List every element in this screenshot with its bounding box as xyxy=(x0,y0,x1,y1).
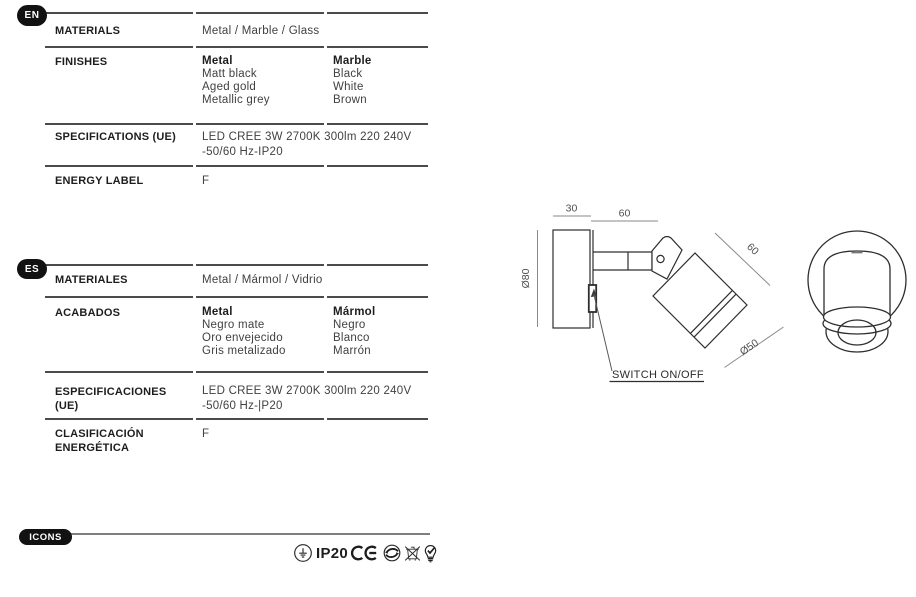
row-label-especificaciones: ESPECIFICACIONES (UE) xyxy=(55,385,166,413)
wall-base-rect xyxy=(553,230,590,328)
dim-base-depth: 30 xyxy=(566,203,578,215)
divider-rule xyxy=(45,264,428,266)
divider-rule xyxy=(45,165,428,167)
front-view xyxy=(808,231,906,352)
finishes-metal-column: Metal Matt black Aged gold Metallic grey xyxy=(202,55,270,107)
finish-item: Brown xyxy=(333,94,372,107)
badge-label: EN xyxy=(25,10,40,21)
finish-item: Metallic grey xyxy=(202,94,270,107)
row-label-specifications: SPECIFICATIONS (UE) xyxy=(55,131,176,143)
divider-rule xyxy=(45,123,428,125)
divider-rule xyxy=(45,371,428,373)
finish-item: Gris metalizado xyxy=(202,345,286,358)
bulb-check-icon xyxy=(424,544,437,563)
ce-mark-icon xyxy=(351,544,381,562)
finishes-marble-column: Marble Black White Brown xyxy=(333,55,372,107)
column-header: Metal xyxy=(202,55,270,68)
row-value-materiales: Metal / Mármol / Vidrio xyxy=(202,273,323,288)
row-label-materiales: MATERIALES xyxy=(55,274,128,286)
finish-item: Negro xyxy=(333,319,375,332)
side-view xyxy=(553,230,747,348)
language-badge-en: EN xyxy=(17,5,47,26)
spec-sheet-page: EN MATERIALS Metal / Marble / Glass FINI… xyxy=(0,0,916,597)
row-label-acabados: ACABADOS xyxy=(55,307,120,319)
row-value-clasificacion: F xyxy=(202,427,209,442)
label-line: CLASIFICACIÓN xyxy=(55,428,144,442)
row-label-clasificacion: CLASIFICACIÓN ENERGÉTICA xyxy=(55,428,144,455)
row-value-especificaciones: LED CREE 3W 2700K 300lm 220 240V -50/60 … xyxy=(202,384,411,413)
icons-badge: ICONS xyxy=(19,529,72,545)
divider-rule xyxy=(45,296,428,298)
weee-crossed-bin-icon xyxy=(403,544,422,562)
column-header: Metal xyxy=(202,306,286,319)
class1-earth-icon xyxy=(293,543,313,563)
finish-item: Blanco xyxy=(333,332,375,345)
leader-line xyxy=(594,294,612,371)
dim-head-length: 60 xyxy=(744,241,761,258)
arm xyxy=(593,252,652,270)
dim-head-diameter: Ø50 xyxy=(738,337,761,358)
column-header: Mármol xyxy=(333,306,375,319)
technical-drawing: SWITCH ON/OFF 30 60 Ø80 60 Ø50 xyxy=(500,190,916,400)
row-value-materials: Metal / Marble / Glass xyxy=(202,24,319,39)
divider-rule xyxy=(45,12,428,14)
badge-label: ES xyxy=(25,264,39,275)
row-label-materials: MATERIALS xyxy=(55,25,120,37)
spec-line: -50/60 Hz-IP20 xyxy=(202,145,411,160)
acabados-metal-column: Metal Negro mate Oro envejecido Gris met… xyxy=(202,306,286,358)
label-line: ESPECIFICACIONES xyxy=(55,385,166,399)
row-label-finishes: FINISHES xyxy=(55,56,107,68)
finish-item: Black xyxy=(333,68,372,81)
green-dot-recycling-icon xyxy=(383,544,401,562)
dim-arm-length: 60 xyxy=(619,208,631,220)
spec-line: LED CREE 3W 2700K 300lm 220 240V xyxy=(202,130,411,145)
finish-item: Marrón xyxy=(333,345,375,358)
finish-item: Oro envejecido xyxy=(202,332,286,345)
finish-item: Aged gold xyxy=(202,81,270,94)
ip-rating-label: IP20 xyxy=(315,545,349,562)
language-badge-es: ES xyxy=(17,259,47,279)
dim-base-diameter: Ø80 xyxy=(520,268,532,288)
acabados-marmol-column: Mármol Negro Blanco Marrón xyxy=(333,306,375,358)
switch-label: SWITCH ON/OFF xyxy=(612,369,704,381)
divider-rule xyxy=(45,418,428,420)
front-rim-ring-1 xyxy=(824,307,891,327)
column-header: Marble xyxy=(333,55,372,68)
row-value-energy: F xyxy=(202,174,209,189)
divider-rule xyxy=(45,46,428,48)
finish-item: Negro mate xyxy=(202,319,286,332)
certification-icons-row: IP20 xyxy=(293,543,437,563)
spec-line: -50/60 Hz-|P20 xyxy=(202,399,411,414)
finish-item: Matt black xyxy=(202,68,270,81)
finish-item: White xyxy=(333,81,372,94)
pivot-pin xyxy=(657,255,664,262)
spec-line: LED CREE 3W 2700K 300lm 220 240V xyxy=(202,384,411,399)
label-line: ENERGÉTICA xyxy=(55,442,144,456)
row-label-energy: ENERGY LABEL xyxy=(55,175,143,187)
icons-rule xyxy=(71,533,430,535)
badge-label: ICONS xyxy=(29,532,62,543)
label-line: (UE) xyxy=(55,399,166,413)
row-value-specifications: LED CREE 3W 2700K 300lm 220 240V -50/60 … xyxy=(202,130,411,159)
